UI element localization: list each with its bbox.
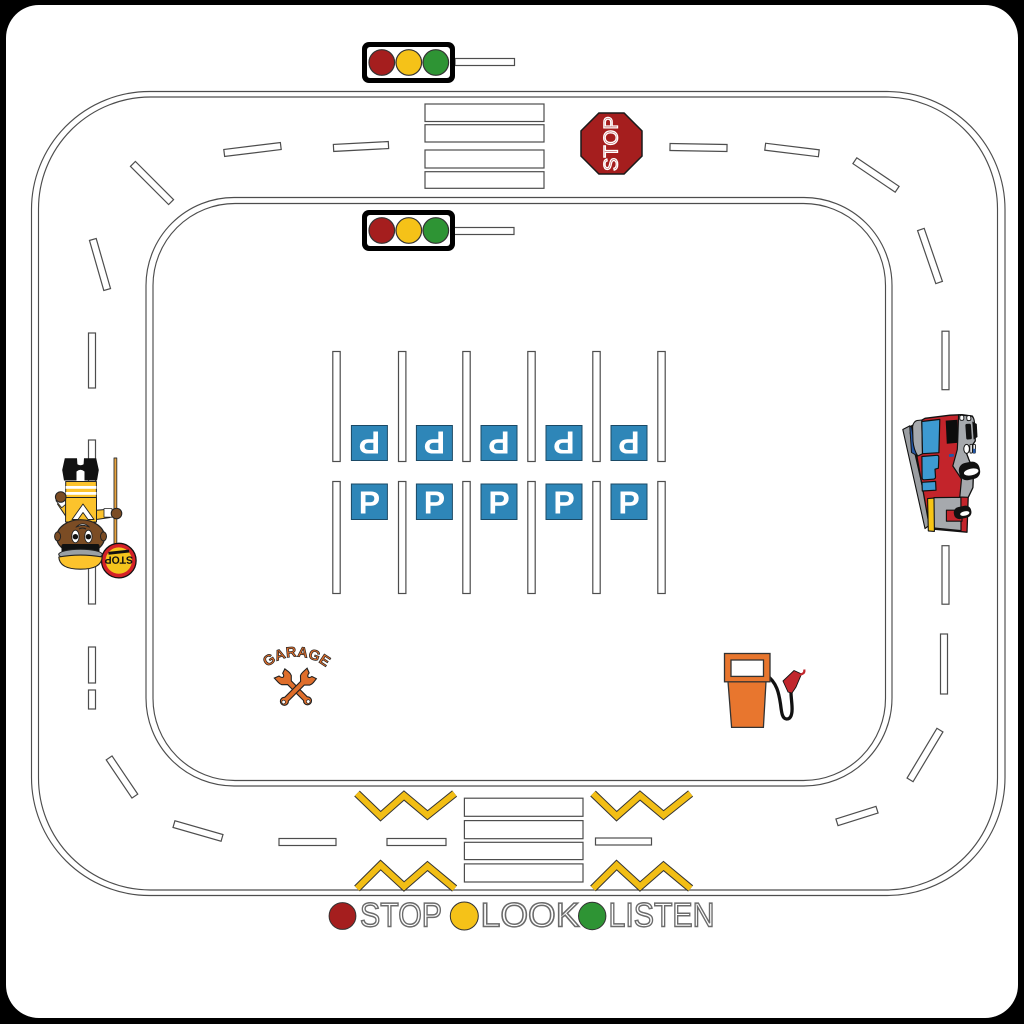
svg-text:P: P bbox=[618, 484, 639, 520]
svg-text:STOP: STOP bbox=[601, 116, 623, 171]
svg-text:LISTEN: LISTEN bbox=[609, 897, 715, 935]
svg-text:P: P bbox=[553, 484, 574, 520]
svg-text:P: P bbox=[488, 425, 509, 461]
svg-text:P: P bbox=[359, 484, 380, 520]
svg-text:P: P bbox=[553, 425, 574, 461]
svg-text:LOOK: LOOK bbox=[481, 897, 580, 935]
svg-text:P: P bbox=[424, 425, 445, 461]
svg-text:P: P bbox=[488, 484, 509, 520]
svg-text:P: P bbox=[618, 425, 639, 461]
svg-text:P: P bbox=[424, 484, 445, 520]
svg-text:P: P bbox=[359, 425, 380, 461]
svg-text:STOP: STOP bbox=[360, 897, 442, 935]
svg-text:STOP: STOP bbox=[105, 554, 133, 566]
